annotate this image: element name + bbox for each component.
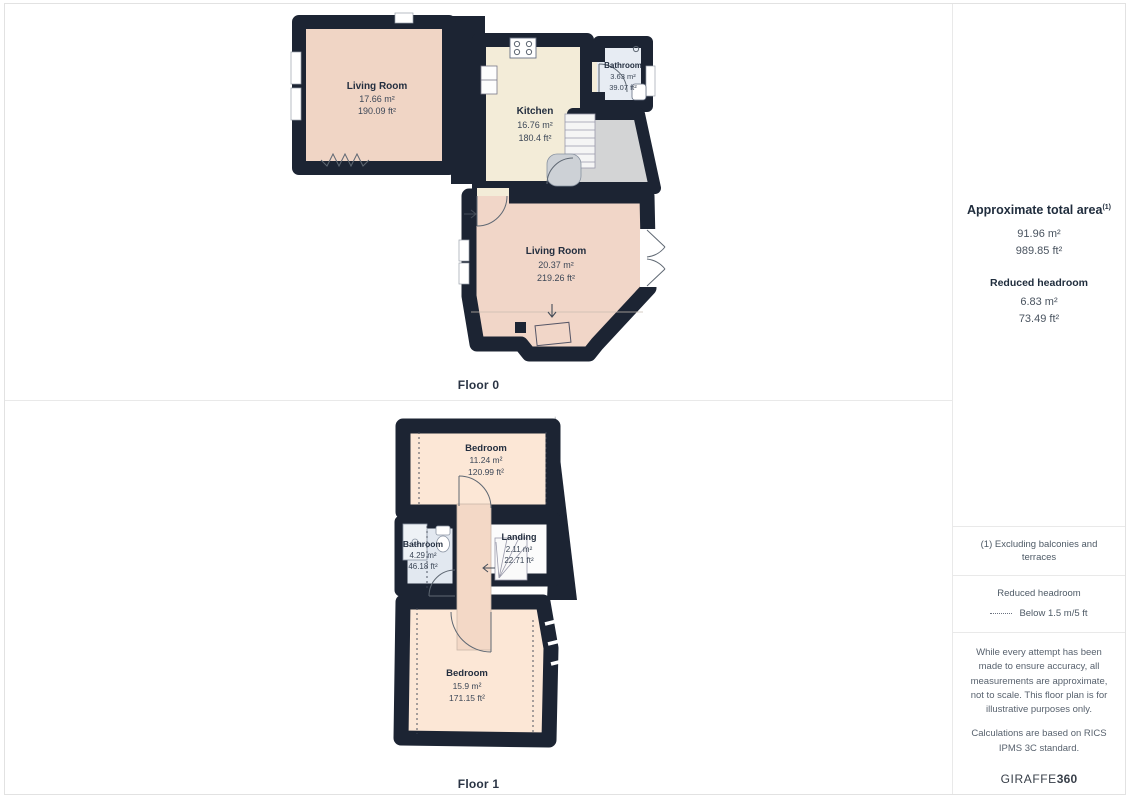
room-area-ft2: 219.26 ft² [537,273,575,283]
total-area-title-text: Approximate total area [967,203,1102,217]
footnote-section: (1) Excluding balconies and terraces [953,526,1125,575]
total-area-title: Approximate total area(1) [967,203,1111,217]
room-area-ft2: 120.99 ft² [468,467,504,477]
room-name-label: Kitchen [517,106,554,117]
legend-section: Reduced headroom Below 1.5 m/5 ft [953,575,1125,632]
room-area-ft2: 46.18 ft² [408,562,438,571]
flue-icon [515,322,526,333]
plans-area: Living Room 17.66 m² 190.09 ft² Kitchen … [5,4,953,794]
room-area-m2: 15.9 m² [453,681,482,691]
window [459,240,469,261]
doorway [592,62,597,92]
floor1-label: Floor 1 [5,777,952,791]
floorplan-document: Living Room 17.66 m² 190.09 ft² Kitchen … [0,0,1131,800]
room-name-label: Living Room [526,246,587,257]
window [291,88,301,120]
footnote-text: (1) Excluding balconies and terraces [953,538,1125,565]
legend-row: Below 1.5 m/5 ft [990,608,1087,619]
room-area-ft2: 39.07 ft² [609,83,637,92]
window [646,66,655,96]
doorway [477,188,509,196]
total-area-m2: 91.96 m² [1017,228,1060,240]
corridor [457,504,491,650]
dotted-line-icon [990,613,1012,614]
room-area-ft2: 190.09 ft² [358,106,396,116]
total-area-section: Approximate total area(1) 91.96 m² 989.8… [953,4,1125,526]
room-name-label: Landing [502,532,537,542]
window [459,263,469,284]
floor-divider [5,400,952,401]
room-name-label: Bathroom [403,539,444,549]
total-area-footnote-ref: (1) [1102,203,1111,210]
floor0-label: Floor 0 [5,378,952,392]
info-panel: Approximate total area(1) 91.96 m² 989.8… [953,4,1125,794]
room-area-m2: 11.24 m² [470,455,503,465]
reduced-headroom-m2: 6.83 m² [1020,296,1057,308]
stair-winder [547,154,581,186]
floor1-plan: Bedroom 11.24 m² 120.99 ft² Bathroom 4.2… [383,408,585,772]
reduced-headroom-ft2: 73.49 ft² [1019,313,1059,325]
window [395,13,413,23]
total-area-ft2: 989.85 ft² [1016,245,1062,257]
stove-icon [510,38,536,58]
legend-label: Below 1.5 m/5 ft [1019,608,1087,619]
disclaimer-text-1: While every attempt has been made to ens… [965,646,1113,717]
room-name-label: Living Room [347,81,408,92]
reduced-headroom-title: Reduced headroom [990,277,1088,289]
brand-suffix: 360 [1057,772,1078,786]
window [291,52,301,84]
room-area-m2: 4.29 m² [409,551,436,560]
giraffe360-logo: GIRAFFE360 [1001,772,1078,786]
room-area-ft2: 171.15 ft² [449,693,485,703]
room-name-label: Bedroom [446,668,488,679]
document-frame: Living Room 17.66 m² 190.09 ft² Kitchen … [4,3,1126,795]
room-area-m2: 20.37 m² [538,260,574,270]
fridge-icon [481,66,497,94]
disclaimer-text-2: Calculations are based on RICS IPMS 3C s… [965,727,1113,756]
room-area-ft2: 22.71 ft² [504,556,534,565]
room-name-label: Bathroom [604,61,642,70]
legend-title: Reduced headroom [997,588,1080,599]
room-area-m2: 16.76 m² [517,120,553,130]
floor0-plan: Living Room 17.66 m² 190.09 ft² Kitchen … [283,6,685,364]
room-area-m2: 2.11 m² [506,545,533,554]
doorway [477,196,509,206]
room-area-m2: 3.63 m² [610,72,636,81]
disclaimer-section: While every attempt has been made to ens… [953,632,1125,794]
room-area-m2: 17.66 m² [359,94,395,104]
brand-name: GIRAFFE [1001,772,1057,786]
room-name-label: Bedroom [465,443,507,454]
room-area-ft2: 180.4 ft² [518,133,551,143]
